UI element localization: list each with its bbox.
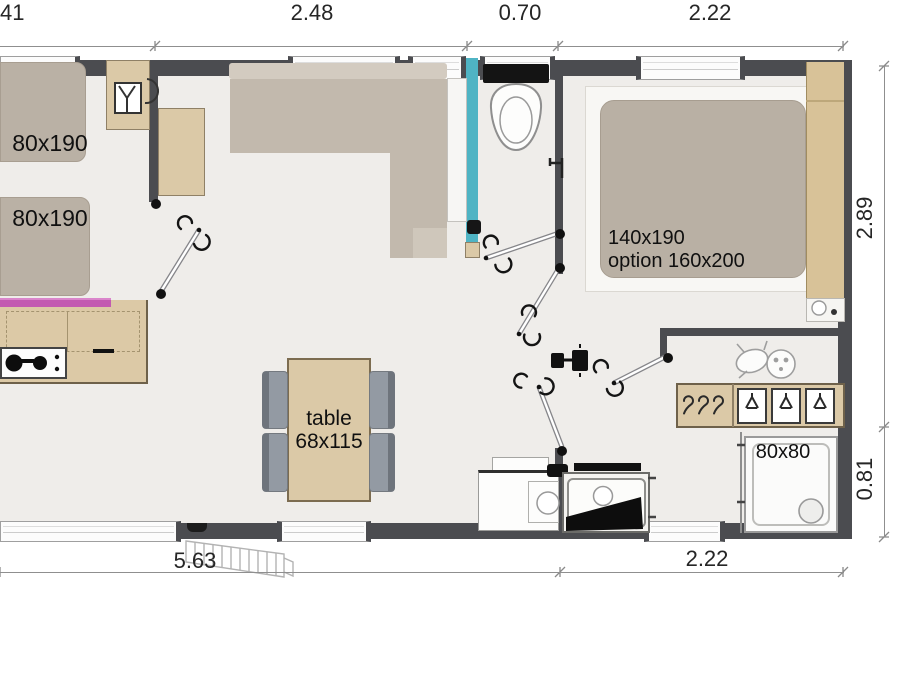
dim-right-1: 2.89 [852, 178, 876, 258]
dim-top-0: 41 [0, 0, 44, 26]
cyan-wall-cap [465, 242, 480, 258]
dim-top-2: 0.70 [489, 0, 551, 26]
shirt-icon [114, 82, 142, 114]
nightstand [806, 298, 845, 322]
label-table-2: 68x115 [283, 430, 375, 454]
counter-inner-outline [6, 311, 140, 352]
wall-bedroom1 [149, 60, 158, 202]
dim-bottom-1: 5.63 [162, 548, 228, 574]
toilet-cistern [483, 64, 549, 83]
shower-door-edge [740, 432, 742, 533]
label-double-bed-2: option 160x200 [608, 250, 745, 273]
sofa-side-panel [447, 78, 467, 222]
shelf-box [737, 388, 767, 424]
dimension-line-right [884, 66, 885, 537]
dim-bottom-2: 2.22 [674, 546, 740, 572]
window-bottom-2 [277, 521, 371, 542]
window-bottom-3 [644, 521, 725, 542]
floorplan-canvas: 41 2.48 0.70 2.22 5.63 2.22 2.89 0.81 80… [0, 0, 900, 675]
window-top-5 [636, 56, 745, 80]
wall-closet-stub [660, 328, 667, 360]
label-single-bed-2: 80x190 [8, 205, 92, 232]
dimension-line-top [0, 46, 844, 47]
label-single-bed-1: 80x190 [8, 130, 92, 157]
counter-edge-magenta [0, 298, 111, 307]
dim-top-3: 2.22 [679, 0, 741, 26]
wall-cyan-partition [466, 58, 478, 244]
heater-inner [567, 478, 646, 528]
cyan-wall-hardware [467, 220, 481, 234]
headboard-line [806, 100, 844, 102]
sofa-back [229, 63, 447, 79]
label-double-bed-1: 140x190 [608, 227, 685, 250]
counter-handle [93, 349, 114, 353]
heater-top-bar [574, 463, 641, 471]
headboard [806, 62, 844, 298]
sofa-chaise-end [413, 228, 447, 258]
sofa-seat [230, 79, 447, 153]
label-shower: 80x80 [745, 441, 821, 464]
wall-toilet [555, 60, 563, 274]
wall-closet-top [660, 328, 848, 336]
vanity-shelf [492, 457, 549, 471]
stove [0, 347, 67, 379]
window-bottom-1 [0, 521, 181, 542]
dim-top-1: 2.48 [281, 0, 343, 26]
shelf-box [805, 388, 835, 424]
basin-box [528, 481, 559, 523]
wardrobe-divider [732, 384, 734, 427]
dimension-line-bottom [0, 572, 844, 573]
label-table-1: table [283, 407, 375, 431]
dim-right-2: 0.81 [852, 439, 876, 519]
hall-cabinet [158, 108, 205, 196]
entry-door-mark [187, 523, 207, 532]
counter-divider [67, 311, 68, 352]
shelf-box [771, 388, 801, 424]
